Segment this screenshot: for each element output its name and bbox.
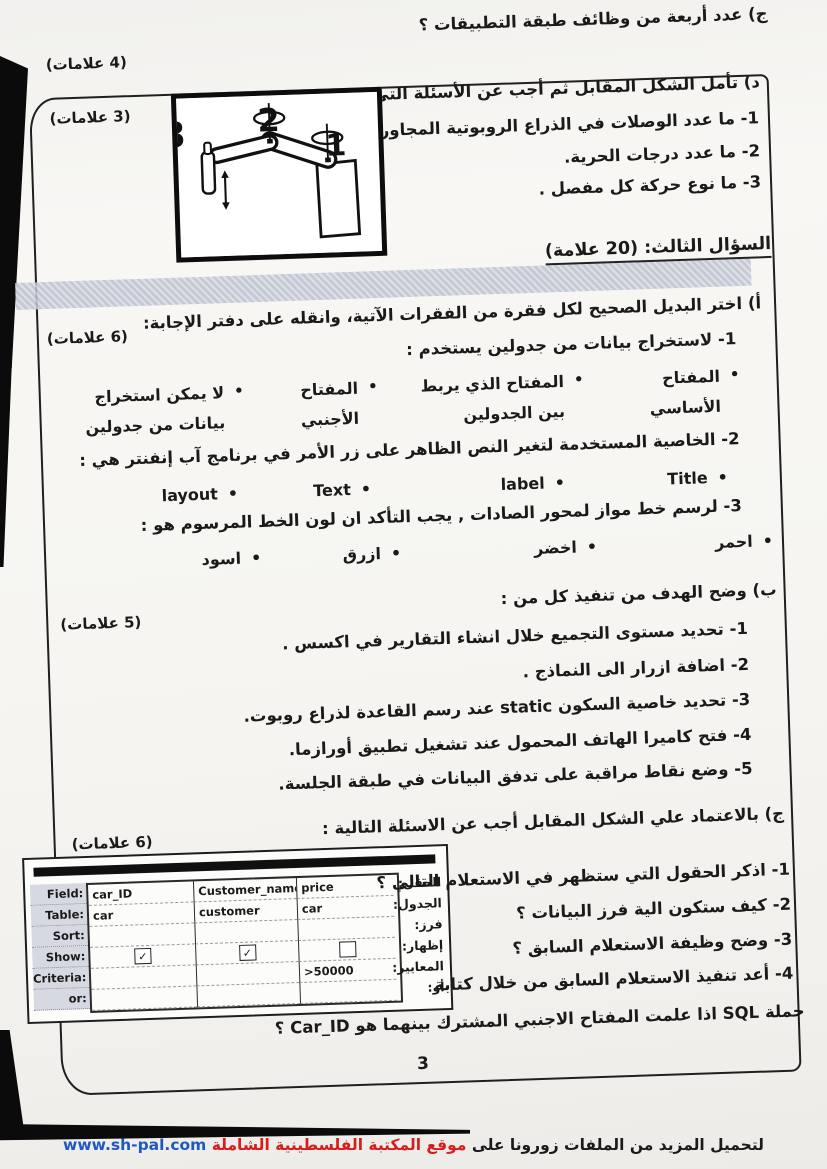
checkbox-checked: ✓ xyxy=(239,944,257,961)
footer-text-red: موقع المكتبة الفلسطينية الشاملة xyxy=(212,1136,467,1154)
option: • لا يمكن استخراج بيانات من جدولين xyxy=(61,378,245,443)
option: • المفتاح الأساسي xyxy=(617,361,741,424)
option: • المفتاح الذي يربط بين الجدولين xyxy=(411,366,585,431)
option-label: Text xyxy=(313,480,351,500)
option-label: المفتاح الأجنبي xyxy=(277,374,359,436)
option-label: label xyxy=(500,474,545,494)
option-label: Title xyxy=(667,468,708,488)
row-label-show: Show: xyxy=(32,946,89,969)
option-label: المفتاح الذي يربط بين الجدولين xyxy=(411,367,565,431)
question-c-text: ج) عدد أربعة من وظائف طبقة التطبيقات ؟ xyxy=(418,4,767,35)
option: • Text xyxy=(313,479,371,500)
bullet-icon: • xyxy=(360,479,371,498)
question-c-marks: (4 علامات) xyxy=(45,53,127,74)
option: • Title xyxy=(667,468,728,489)
row-label-ar: إظهار: xyxy=(395,934,448,957)
site-footer: لتحميل المزيد من الملفات زورونا على موقع… xyxy=(0,1136,827,1154)
footer-text-black: لتحميل المزيد من الملفات زورونا على xyxy=(472,1136,764,1154)
option-label: اخضر xyxy=(534,538,577,558)
figure-label-1: 1 xyxy=(325,128,347,164)
option-label: layout xyxy=(161,484,218,505)
bullet-icon: • xyxy=(251,548,262,567)
or-cell xyxy=(299,980,397,1004)
robot-arm-figure: 3 2 1 xyxy=(171,87,387,263)
row-label-table: Table: xyxy=(31,904,88,927)
figure-label-2: 2 xyxy=(257,101,280,140)
checkbox-unchecked xyxy=(339,941,357,958)
bullet-icon: • xyxy=(234,378,246,437)
option: • المفتاح الأجنبي xyxy=(277,373,379,435)
option-label: لا يمكن استخراج بيانات من جدولين xyxy=(61,378,225,443)
option: • اسود xyxy=(201,548,261,569)
bullet-icon: • xyxy=(391,543,402,562)
option-label: المفتاح الأساسي xyxy=(617,362,721,425)
bullet-icon: • xyxy=(228,484,239,503)
grid-row-labels-en: Field: Table: Sort: Show: Criteria: or: xyxy=(30,883,90,1011)
option-label: احمر xyxy=(715,532,753,552)
bullet-icon: • xyxy=(717,468,728,487)
option: • ازرق xyxy=(342,543,401,564)
page-number: 3 xyxy=(417,1054,430,1074)
checkbox-checked: ✓ xyxy=(134,948,152,965)
part-c-marks: (6 علامات) xyxy=(71,833,153,854)
row-label-criteria: Criteria: xyxy=(33,967,90,990)
option: • layout xyxy=(161,484,238,506)
bullet-icon: • xyxy=(587,537,598,556)
option-label: اسود xyxy=(201,549,241,569)
bullet-icon: • xyxy=(762,531,773,550)
or-cell xyxy=(196,983,300,1007)
bullet-icon: • xyxy=(554,473,565,492)
option: • اخضر xyxy=(534,537,598,558)
row-label-field: Field: xyxy=(30,883,87,906)
question-d-marks: (3 علامات) xyxy=(49,107,131,128)
part-a-marks: (6 علامات) xyxy=(47,327,129,348)
or-cell xyxy=(91,986,197,1010)
row-label-sort: Sort: xyxy=(31,925,88,948)
figure-label-3: 3 xyxy=(176,115,187,157)
row-label-ar: الجدول: xyxy=(393,892,446,915)
bullet-icon: • xyxy=(573,366,585,425)
option-label: ازرق xyxy=(342,544,381,564)
row-label-ar: فرز: xyxy=(394,913,447,936)
bullet-icon: • xyxy=(368,373,380,432)
robot-arm-drawing: 3 2 1 xyxy=(176,92,382,258)
grid-data-cells: car_ID Customer_name price car customer … xyxy=(86,873,403,1013)
option: • label xyxy=(500,473,565,494)
bullet-icon: • xyxy=(729,361,741,420)
row-label-or: or: xyxy=(33,988,90,1011)
paper: ج) عدد أربعة من وظائف طبقة التطبيقات ؟ (… xyxy=(0,0,827,1169)
footer-site-url: www.sh-pal.com xyxy=(63,1136,206,1154)
part-b-marks: (5 علامات) xyxy=(60,613,142,634)
query-design-grid-figure: Field: Table: Sort: Show: Criteria: or: … xyxy=(22,844,453,1024)
option: • احمر xyxy=(715,531,774,552)
scanned-exam-page: ج) عدد أربعة من وظائف طبقة التطبيقات ؟ (… xyxy=(0,0,827,1169)
